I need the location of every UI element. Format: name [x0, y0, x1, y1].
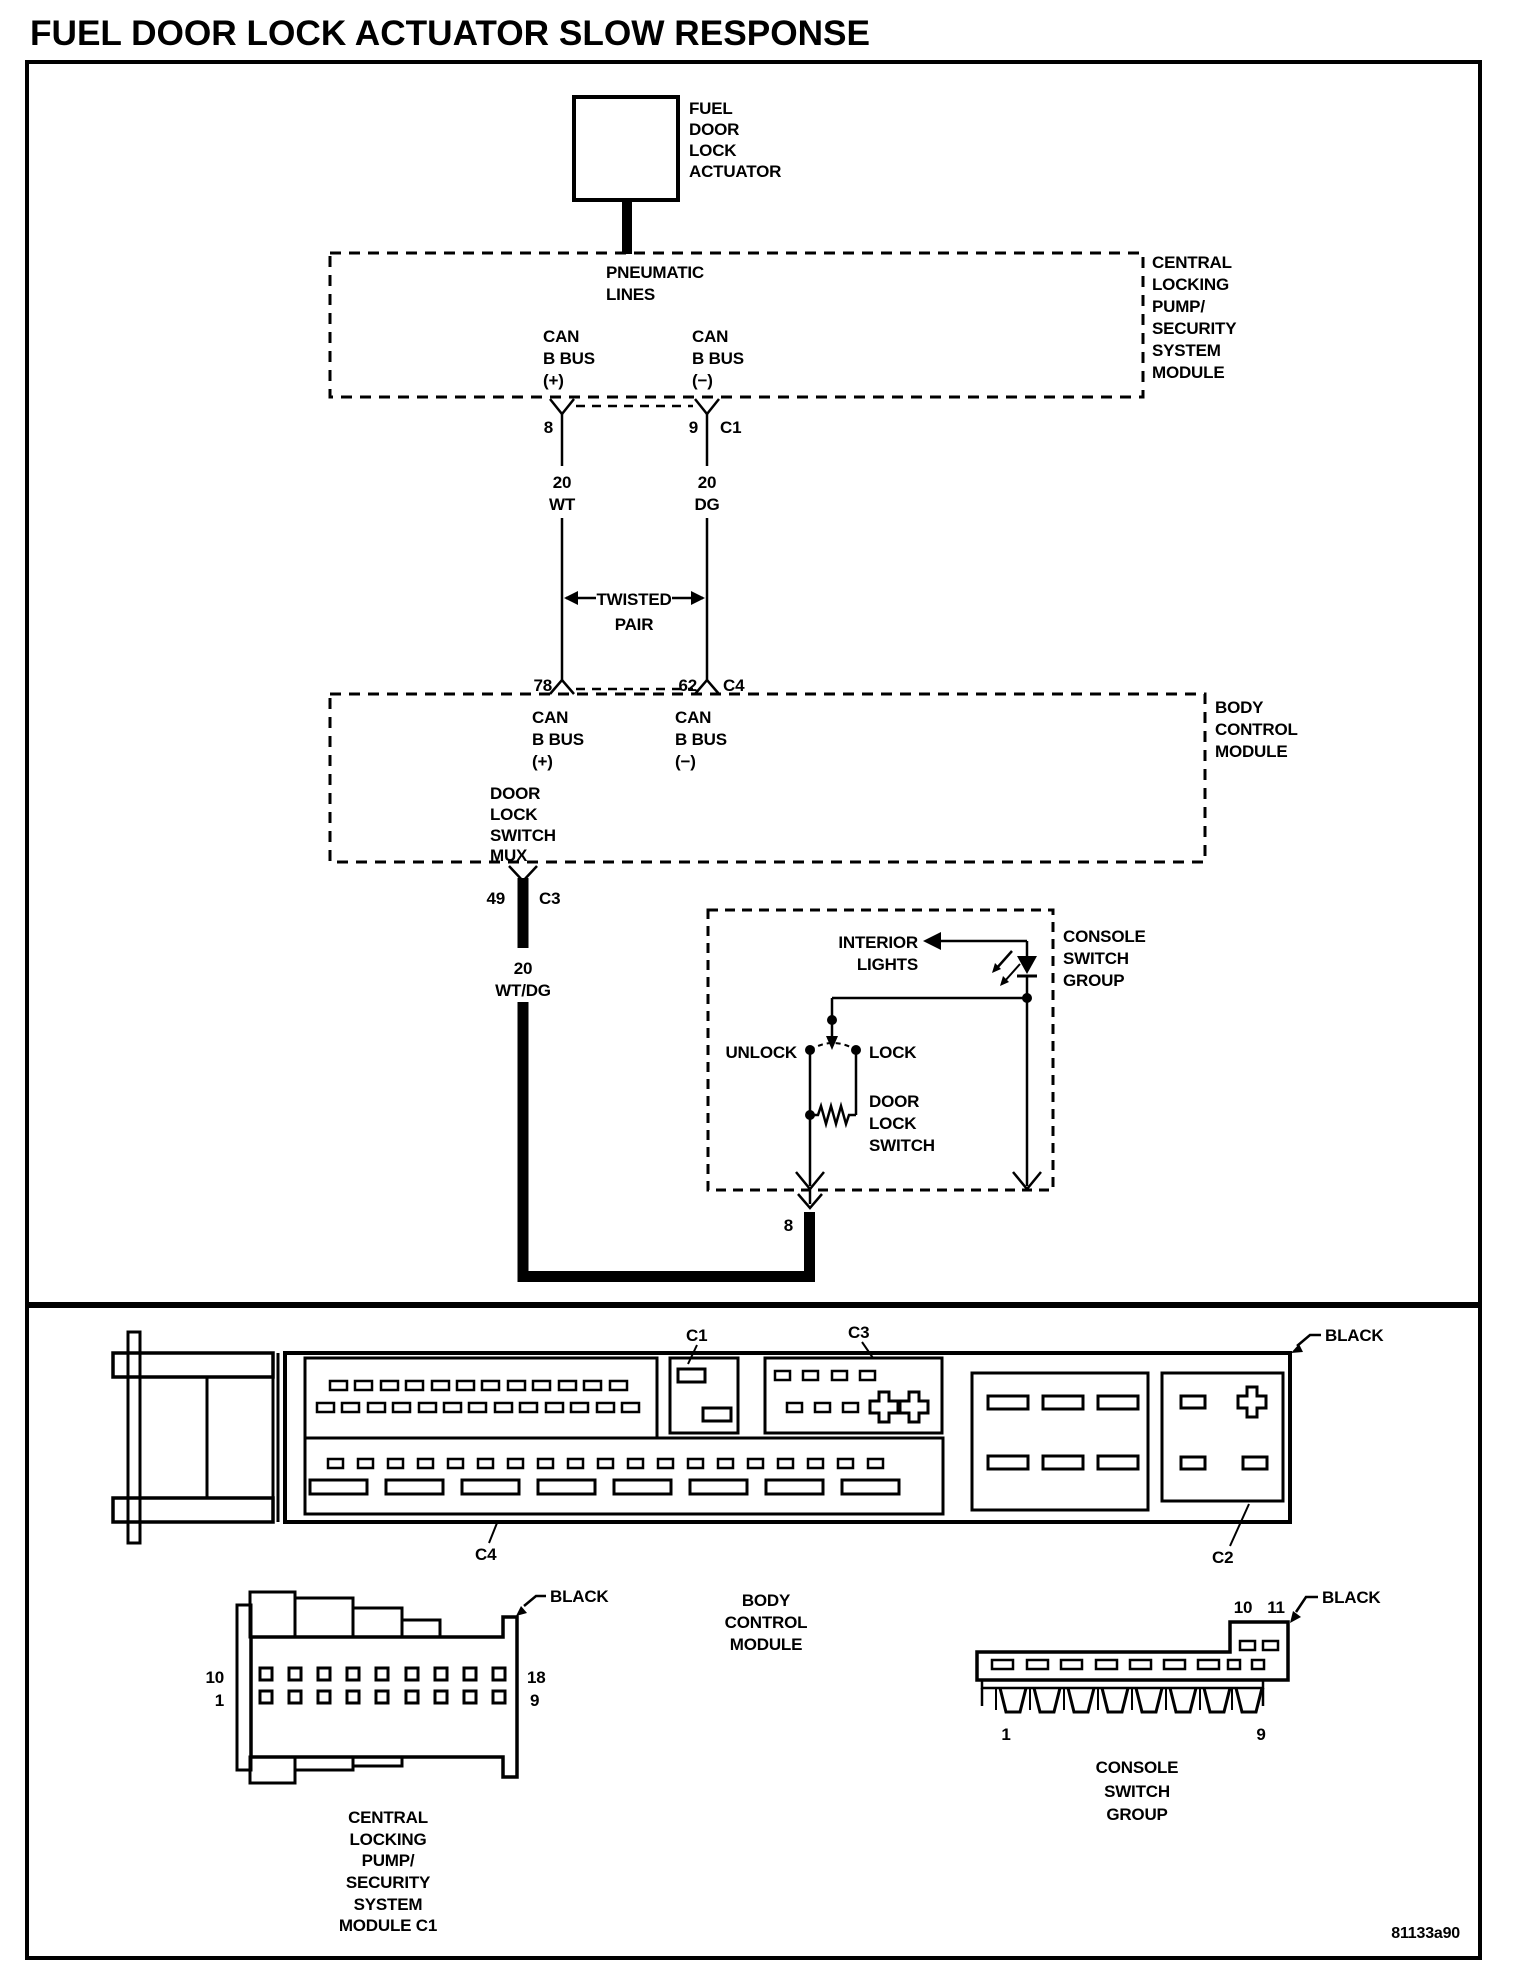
twisted-right-arrow-icon	[691, 591, 705, 605]
csg-pin	[1240, 1641, 1255, 1650]
clpm-canb-plus-label: (+)	[543, 371, 564, 390]
csg-name: CONSOLE	[1063, 927, 1146, 946]
c4-wide-pin-row	[310, 1480, 899, 1494]
clpm-conn-tab	[250, 1757, 295, 1783]
bcm-pin-62: 62	[678, 676, 697, 695]
bcm-dashed-box	[330, 694, 1205, 862]
mux-wire-gauge: 20	[514, 959, 533, 978]
bcm-caption: MODULE	[730, 1635, 802, 1654]
bcm-mux-label: SWITCH	[490, 826, 556, 845]
clpm-face-color-label: BLACK	[550, 1587, 609, 1606]
door-lock-switch-label: SWITCH	[869, 1136, 935, 1155]
clpm-name: MODULE	[1152, 363, 1224, 382]
bcm-pin-49: 49	[486, 889, 505, 908]
clpm-caption: SECURITY	[346, 1873, 431, 1892]
csg-name: SWITCH	[1063, 949, 1129, 968]
csg-pin	[1263, 1641, 1278, 1650]
can-bus-harness: 20 WT 20 DG TWISTED PAIR	[549, 414, 720, 680]
door-lock-switch-mux-wire: 20 WT/DG	[495, 878, 809, 1277]
clpm-caption: CENTRAL	[348, 1808, 428, 1827]
bcm-canb-minus-label: B BUS	[675, 730, 727, 749]
wire1-color: WT	[549, 495, 576, 514]
resistor-icon	[810, 1106, 856, 1124]
black-arrow	[1297, 1335, 1321, 1346]
bcm-caption: CONTROL	[725, 1613, 808, 1632]
actuator-label: LOCK	[689, 141, 737, 160]
bcm-mux-label: LOCK	[490, 805, 538, 824]
csg-caption: SWITCH	[1104, 1782, 1170, 1801]
pin-symbol	[550, 680, 574, 694]
wire1-gauge: 20	[553, 473, 572, 492]
leader-line	[489, 1523, 497, 1543]
pneumatic-lines-label: LINES	[606, 285, 655, 304]
black-arrow-icon	[1290, 1611, 1301, 1623]
pin-symbol	[550, 399, 574, 414]
unlock-label: UNLOCK	[725, 1043, 797, 1062]
clpm-name: SYSTEM	[1152, 341, 1221, 360]
clpm-conn-pins-row2	[260, 1691, 505, 1703]
pneumatic-lines-label: PNEUMATIC	[606, 263, 704, 282]
bcm-mux-label: DOOR	[490, 784, 540, 803]
fuel-door-lock-actuator: FUEL DOOR LOCK ACTUATOR	[574, 97, 781, 254]
wire2-gauge: 20	[698, 473, 717, 492]
led-ray-icon	[996, 951, 1012, 969]
c1-pin	[678, 1369, 705, 1382]
c4-lower-cavity	[305, 1438, 943, 1514]
pin-symbol	[695, 399, 719, 414]
bcm-caption: BODY	[742, 1591, 791, 1610]
bcm-connector-face: C1 C3 C4 C2 BLACK	[113, 1323, 1384, 1567]
clpm-pin-8: 8	[544, 418, 553, 437]
bcm-face-c2-label: C2	[1212, 1548, 1233, 1567]
bcm-conn-recess	[140, 1377, 207, 1498]
bcm-canb-minus-label: CAN	[675, 708, 711, 727]
csg-face-pin-11: 11	[1267, 1598, 1285, 1617]
middle-block-pins	[988, 1396, 1138, 1469]
clpm-canb-plus-label: B BUS	[543, 349, 595, 368]
csg-pin-8: 8	[784, 1216, 793, 1235]
c1-pin	[703, 1408, 731, 1421]
interior-lights-arrow-icon	[923, 932, 941, 950]
clpm-conn-pins-row1	[260, 1668, 505, 1680]
clpm-conn-tab	[402, 1620, 440, 1637]
interior-lights-label: LIGHTS	[857, 955, 918, 974]
c2-pin	[1243, 1457, 1267, 1469]
csg-face-pin-1: 1	[1001, 1725, 1010, 1744]
clpm-caption: MODULE C1	[339, 1916, 437, 1935]
bcm-canb-plus-label: B BUS	[532, 730, 584, 749]
bcm-name: BODY	[1215, 698, 1264, 717]
clpm-canb-plus-label: CAN	[543, 327, 579, 346]
c2-block	[1162, 1373, 1283, 1501]
c4-pin-row-b	[317, 1403, 639, 1412]
clpm-conn-tab	[295, 1598, 353, 1637]
actuator-label: DOOR	[689, 120, 739, 139]
clpm-face-pin-9: 9	[530, 1691, 539, 1710]
clpm-conn-tab	[353, 1608, 402, 1637]
clpm-name: LOCKING	[1152, 275, 1229, 294]
pin-symbol	[695, 680, 719, 694]
console-switch-group: CONSOLE SWITCH GROUP INTERIOR LIGHTS UNL…	[708, 910, 1146, 1235]
csg-name: GROUP	[1063, 971, 1124, 990]
twisted-pair-label: PAIR	[615, 615, 654, 634]
bcm-face-c4-label: C4	[475, 1545, 497, 1564]
bcm-connector-c3: C3	[539, 889, 560, 908]
clpm-caption: SYSTEM	[354, 1895, 423, 1914]
csg-face-pin-10: 10	[1234, 1598, 1253, 1617]
interior-lights-label: INTERIOR	[838, 933, 918, 952]
body-control-module: 78 62 C4 BODY CONTROL MODULE CAN B BUS (…	[330, 676, 1298, 908]
wire2-color: DG	[694, 495, 719, 514]
junction-dot	[827, 1015, 837, 1025]
figure-code: 81133a90	[1391, 1925, 1460, 1942]
bcm-face-c3-label: C3	[848, 1323, 869, 1342]
clpm-dashed-box	[330, 253, 1143, 397]
wiring-diagram-svg: FUEL DOOR LOCK ACTUATOR SLOW RESPONSE FU…	[0, 0, 1520, 1982]
c2-pin	[1181, 1396, 1205, 1408]
page-title: FUEL DOOR LOCK ACTUATOR SLOW RESPONSE	[30, 14, 870, 53]
clpm-pin-9: 9	[689, 418, 698, 437]
black-arrow	[1296, 1597, 1318, 1612]
bcm-name: CONTROL	[1215, 720, 1298, 739]
clpm-conn-tab	[295, 1757, 353, 1770]
bcm-mux-label: MUX	[490, 846, 528, 865]
csg-caption: CONSOLE	[1096, 1758, 1179, 1777]
clpm-canb-minus-label: B BUS	[692, 349, 744, 368]
bcm-canb-minus-label: (−)	[675, 752, 696, 771]
door-lock-switch-label: DOOR	[869, 1092, 919, 1111]
csg-connector-face: 10 11 1 9 BLACK	[977, 1588, 1381, 1744]
section-divider	[27, 1302, 1480, 1308]
black-arrow-icon	[516, 1606, 527, 1616]
wiring-diagram-page: FUEL DOOR LOCK ACTUATOR SLOW RESPONSE FU…	[0, 0, 1520, 1982]
clpm-canb-minus-label: CAN	[692, 327, 728, 346]
mux-wire-color: WT/DG	[495, 981, 551, 1000]
clpm-connector-c1: C1	[720, 418, 741, 437]
actuator-box	[574, 97, 678, 200]
black-arrow	[524, 1596, 546, 1606]
bcm-conn-web	[207, 1377, 273, 1498]
clpm-face-pin-18: 18	[527, 1668, 546, 1687]
c3-pins	[775, 1371, 928, 1422]
bcm-canb-plus-label: CAN	[532, 708, 568, 727]
leader-line	[862, 1342, 873, 1358]
c4-small-pin-row	[328, 1459, 883, 1468]
bcm-connector-c4: C4	[723, 676, 745, 695]
c2-pin	[1181, 1457, 1205, 1469]
c2-cross-pin	[1238, 1387, 1266, 1417]
clpm-name: PUMP/	[1152, 297, 1205, 316]
central-locking-pump-module: CENTRAL LOCKING PUMP/ SECURITY SYSTEM MO…	[330, 253, 1237, 437]
bcm-conn-top-tab	[113, 1353, 273, 1377]
c4-upper-cavity	[305, 1358, 657, 1438]
clpm-face-pin-10: 10	[205, 1668, 224, 1687]
actuator-label: FUEL	[689, 99, 733, 118]
pneumatic-line-wire	[622, 200, 632, 254]
bcm-conn-bottom-tab	[113, 1498, 273, 1522]
led-ray-icon	[1004, 964, 1020, 982]
clpm-name: SECURITY	[1152, 319, 1237, 338]
twisted-left-arrow-icon	[564, 591, 578, 605]
leader-line	[1230, 1504, 1249, 1546]
clpm-caption: PUMP/	[362, 1851, 415, 1870]
page-border	[27, 62, 1480, 1958]
csg-comb-teeth	[982, 1688, 1263, 1712]
clpm-face-pin-1: 1	[215, 1691, 224, 1710]
csg-slot-pins	[992, 1660, 1264, 1669]
csg-face-pin-9: 9	[1256, 1725, 1265, 1744]
clpm-name: CENTRAL	[1152, 253, 1232, 272]
clpm-canb-minus-label: (−)	[692, 371, 713, 390]
csg-comb-strip	[982, 1680, 1263, 1688]
clpm-caption: LOCKING	[350, 1830, 427, 1849]
twisted-pair-label: TWISTED	[596, 590, 671, 609]
clpm-connector-face: 10 1 18 9 BLACK	[205, 1587, 609, 1783]
bcm-pin-78: 78	[533, 676, 552, 695]
bcm-face-color-label: BLACK	[1325, 1326, 1384, 1345]
bcm-canb-plus-label: (+)	[532, 752, 553, 771]
actuator-label: ACTUATOR	[689, 162, 781, 181]
clpm-conn-tab	[250, 1592, 295, 1637]
middle-block	[972, 1373, 1148, 1510]
bcm-name: MODULE	[1215, 742, 1287, 761]
bcm-conn-latch-bar	[128, 1332, 140, 1543]
door-lock-switch-label: LOCK	[869, 1114, 917, 1133]
c4-pin-row-a	[330, 1381, 627, 1390]
bcm-face-c1-label: C1	[686, 1326, 707, 1345]
csg-face-color-label: BLACK	[1322, 1588, 1381, 1607]
csg-caption: GROUP	[1106, 1805, 1167, 1824]
lock-label: LOCK	[869, 1043, 917, 1062]
